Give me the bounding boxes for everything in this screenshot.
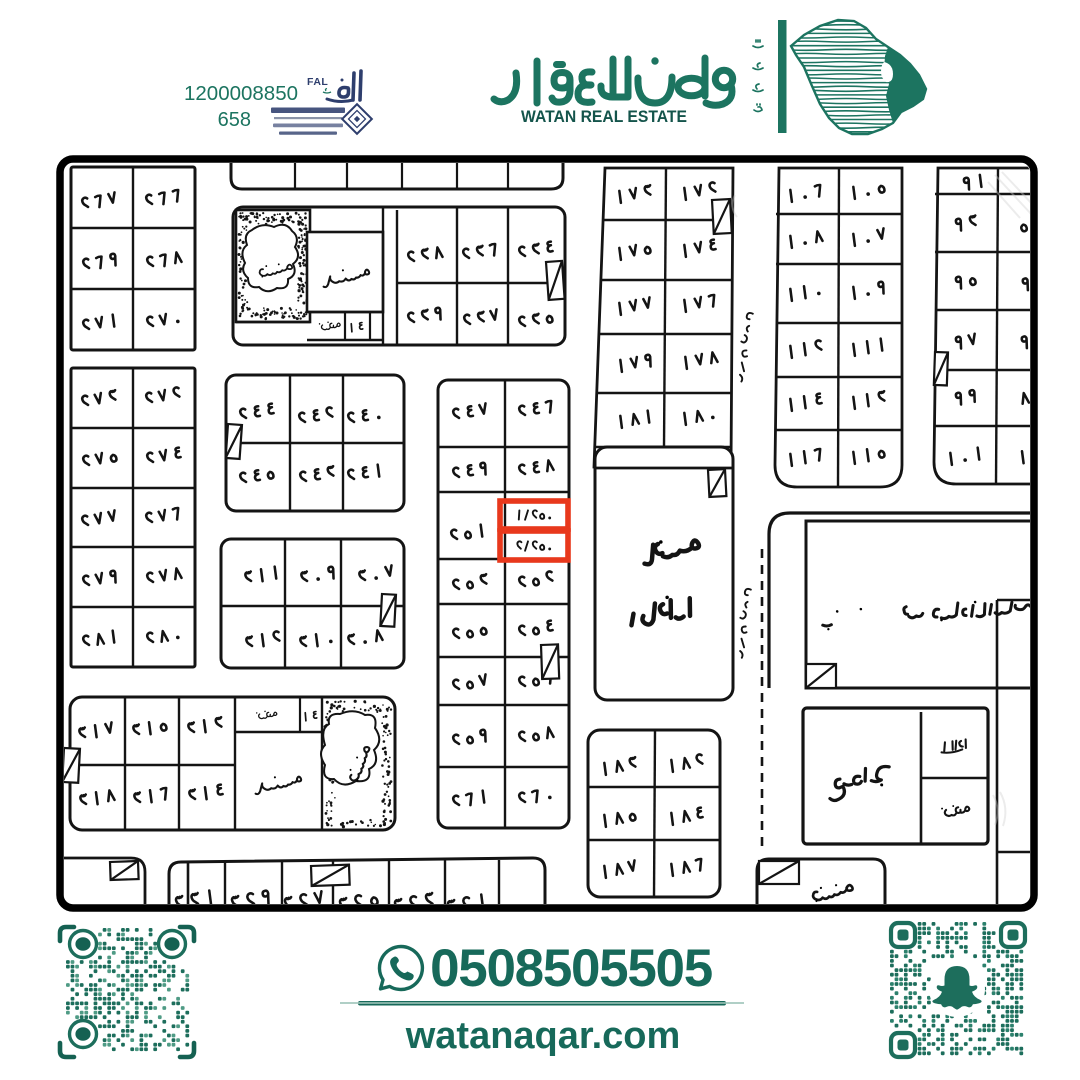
svg-text:WATAN REAL ESTATE: WATAN REAL ESTATE <box>521 108 687 126</box>
svg-text:0508505505: 0508505505 <box>430 939 712 998</box>
svg-text:1200008850: 1200008850 <box>184 82 298 105</box>
svg-text:658: 658 <box>218 109 251 131</box>
svg-text:watanaqar.com: watanaqar.com <box>405 1015 681 1057</box>
svg-text:FAL: FAL <box>307 76 328 88</box>
